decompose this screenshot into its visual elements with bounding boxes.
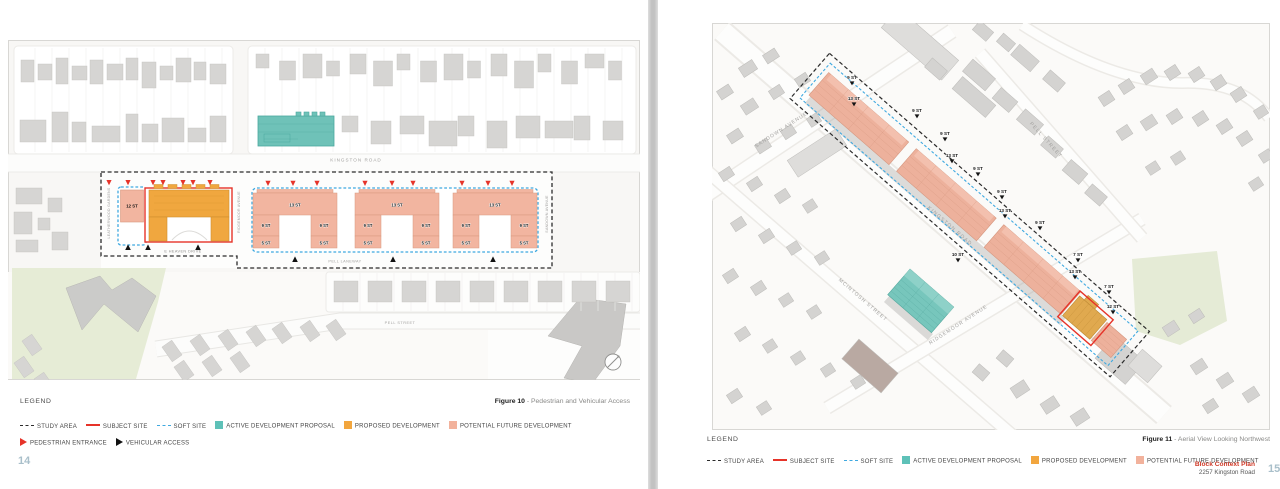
legend-row-1: STUDY AREASUBJECT SITESOFT SITEACTIVE DE… (20, 415, 581, 433)
tri-black-swatch (116, 438, 123, 446)
legend-item-label: PEDESTRIAN ENTRANCE (30, 441, 107, 447)
building-label: 13 ST (848, 96, 860, 101)
building-label: 5 ST (262, 241, 271, 246)
street-label-leatherwood-gardens: LEATHERWOOD GARDENS (107, 187, 111, 238)
legend-item-label: PROPOSED DEVELOPMENT (355, 424, 440, 430)
building-label: 9 ST (973, 166, 983, 171)
street-label-e-heaven-drive: E HEAVEN DRIVE (164, 250, 201, 254)
building-label: 9 ST (462, 223, 471, 228)
legend-row-1: STUDY AREASUBJECT SITESOFT SITEACTIVE DE… (707, 450, 1268, 468)
report-footer: Block Context Plan 2257 Kingston Road (1195, 461, 1255, 477)
building-label: 5 ST (462, 241, 471, 246)
street-label-pell-street: PELL STREET (385, 321, 416, 325)
building-label: 9 ST (520, 223, 529, 228)
figure-caption: Figure 11 - Aerial View Looking Northwes… (1142, 436, 1270, 443)
page-number: 14 (18, 455, 30, 467)
legend-item-label: ACTIVE DEVELOPMENT PROPOSAL (226, 424, 335, 430)
building-label: 13 ST (391, 203, 403, 208)
legend-item-label: STUDY AREA (37, 424, 77, 430)
dash-black-swatch (707, 460, 721, 462)
legend-row-2: PEDESTRIAN ENTRANCEVEHICULAR ACCESS (20, 432, 198, 450)
building-label: 7 ST (1104, 284, 1114, 289)
line-red-swatch (773, 459, 787, 461)
building-label: 13 ST (999, 208, 1011, 213)
legend-item-label: SUBJECT SITE (103, 424, 148, 430)
building-label: 12 ST (1107, 304, 1119, 309)
building-label: 5 ST (364, 241, 373, 246)
building-label: 9 ST (847, 75, 857, 80)
left-page: 12 ST 13 ST9 ST9 ST5 ST5 ST13 ST9 ST9 ST… (0, 0, 648, 489)
legend-item: STUDY AREA (707, 459, 764, 465)
legend-item: SOFT SITE (157, 424, 207, 430)
legend-item-label: STUDY AREA (724, 459, 764, 465)
square-salmon-swatch (1136, 456, 1144, 464)
square-teal-swatch (215, 421, 223, 429)
legend-item-label: PROPOSED DEVELOPMENT (1042, 459, 1127, 465)
legend-item-label: SOFT SITE (174, 424, 207, 430)
legend-title: LEGEND (707, 436, 739, 443)
street-label-ridgemoor-avenue: RIDGEMOOR AVENUE (237, 191, 241, 233)
building-label: 13 ST (1069, 269, 1081, 274)
legend-item: ACTIVE DEVELOPMENT PROPOSAL (902, 457, 1022, 465)
line-red-swatch (86, 424, 100, 426)
page-number: 15 (1268, 463, 1280, 475)
legend-item: SOFT SITE (844, 459, 894, 465)
page-divider (648, 0, 658, 489)
building-label: 5 ST (320, 241, 329, 246)
legend-item: VEHICULAR ACCESS (116, 439, 190, 447)
street-label-pell-laneway: PELL LANEWAY (328, 260, 361, 264)
figure-caption: Figure 10 - Pedestrian and Vehicular Acc… (495, 398, 630, 405)
street-label-sandown-avenue: SANDOWN AVENUE (545, 195, 549, 233)
building-label: 5 ST (422, 241, 431, 246)
aerial-view-map: 9 ST13 ST9 ST9 ST13 ST9 ST9 ST13 ST9 ST7… (712, 23, 1270, 430)
dash-black-swatch (20, 425, 34, 427)
legend-title: LEGEND (20, 398, 52, 405)
footer-title: Block Context Plan (1195, 461, 1255, 469)
square-orange-swatch (1031, 456, 1039, 464)
building-label: 9 ST (364, 223, 373, 228)
building-label: 13 ST (489, 203, 501, 208)
legend-item: SUBJECT SITE (773, 459, 835, 465)
building-label: 9 ST (262, 223, 271, 228)
building-label: 9 ST (422, 223, 431, 228)
building-label: 9 ST (940, 131, 950, 136)
building-label: 9 ST (912, 108, 922, 113)
legend-item: PROPOSED DEVELOPMENT (1031, 457, 1127, 465)
building-label: 9 ST (320, 223, 329, 228)
tri-red-swatch (20, 438, 27, 446)
dash-blue-swatch (157, 425, 171, 427)
legend-item-label: SUBJECT SITE (790, 459, 835, 465)
active-development-building (258, 112, 334, 146)
legend-item-label: POTENTIAL FUTURE DEVELOPMENT (460, 424, 572, 430)
square-teal-swatch (902, 456, 910, 464)
legend-item: PEDESTRIAN ENTRANCE (20, 439, 107, 447)
building-label: 7 ST (1073, 252, 1083, 257)
legend-item: ACTIVE DEVELOPMENT PROPOSAL (215, 422, 335, 430)
footer-address: 2257 Kingston Road (1195, 469, 1255, 477)
right-page: 9 ST13 ST9 ST9 ST13 ST9 ST9 ST13 ST9 ST7… (658, 0, 1280, 489)
building-label: 5 ST (520, 241, 529, 246)
legend-item-label: SOFT SITE (861, 459, 894, 465)
legend-item-label: VEHICULAR ACCESS (126, 441, 190, 447)
legend-item: STUDY AREA (20, 424, 77, 430)
legend-item: PROPOSED DEVELOPMENT (344, 422, 440, 430)
square-salmon-swatch (449, 421, 457, 429)
street-label-kingston-road: KINGSTON ROAD (330, 158, 381, 163)
building-label: 9 ST (1035, 220, 1045, 225)
building-label: 13 ST (289, 203, 301, 208)
kingston-road (8, 154, 640, 172)
building-label: 12 ST (126, 204, 138, 209)
building-label: 13 ST (946, 153, 958, 158)
building-label: 9 ST (997, 189, 1007, 194)
legend-item: SUBJECT SITE (86, 424, 148, 430)
legend-item-label: ACTIVE DEVELOPMENT PROPOSAL (913, 459, 1022, 465)
square-orange-swatch (344, 421, 352, 429)
legend-item: POTENTIAL FUTURE DEVELOPMENT (449, 422, 572, 430)
building-label: 10 ST (952, 252, 964, 257)
north-arrow-compass (605, 354, 621, 370)
site-plan-map: 12 ST 13 ST9 ST9 ST5 ST5 ST13 ST9 ST9 ST… (8, 40, 640, 380)
dash-blue-swatch (844, 460, 858, 462)
